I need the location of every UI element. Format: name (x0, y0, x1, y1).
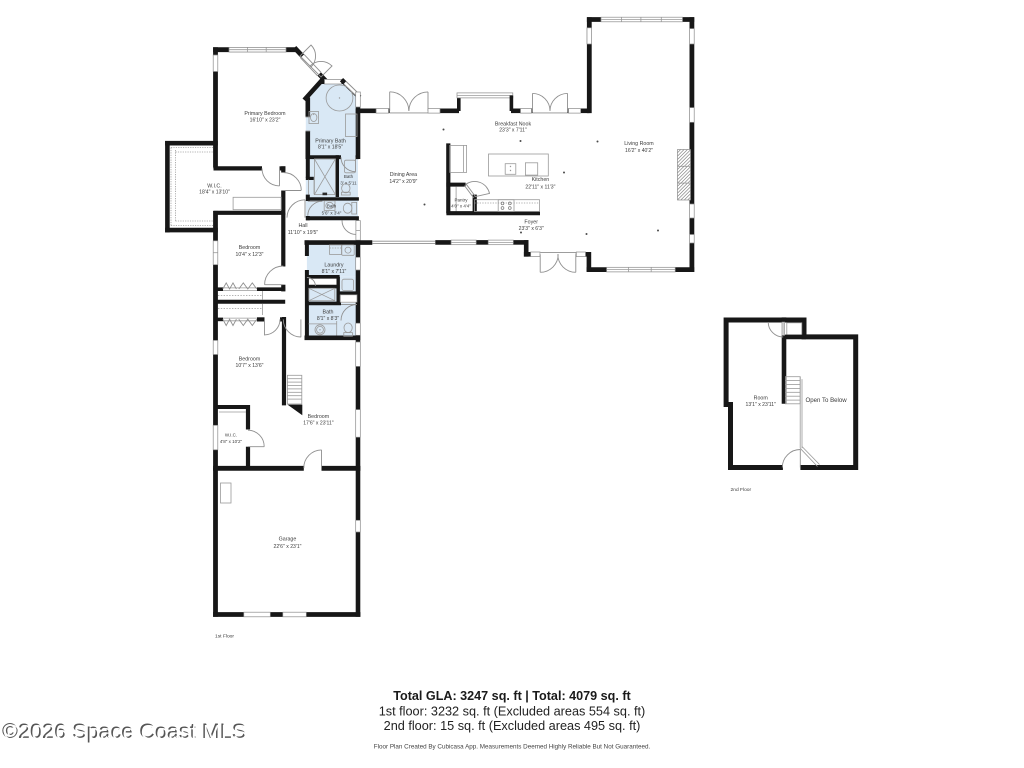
svg-text:Hall: Hall (298, 223, 307, 229)
svg-text:14'2" x 20'9": 14'2" x 20'9" (389, 179, 417, 185)
svg-text:8'1" x 18'5": 8'1" x 18'5" (318, 145, 343, 151)
svg-text:Bedroom: Bedroom (239, 245, 261, 251)
svg-text:Breakfast Nook: Breakfast Nook (495, 121, 532, 127)
svg-text:Living Room: Living Room (624, 141, 654, 147)
svg-text:Foyer: Foyer (524, 219, 538, 225)
svg-text:W.I.C.: W.I.C. (225, 433, 237, 438)
svg-text:16'2" x 40'2": 16'2" x 40'2" (625, 148, 653, 154)
svg-text:10'7" x 13'6": 10'7" x 13'6" (236, 363, 264, 369)
svg-text:Primary Bedroom: Primary Bedroom (244, 111, 286, 117)
svg-text:Room: Room (754, 395, 769, 401)
svg-text:11'10" x 19'5": 11'10" x 19'5" (288, 230, 319, 236)
svg-text:22'11" x 11'3": 22'11" x 11'3" (525, 184, 555, 190)
svg-text:W.I.C.: W.I.C. (207, 183, 221, 189)
svg-text:2nd Floor: 2nd Floor (731, 487, 752, 493)
svg-text:Bedroom: Bedroom (239, 356, 261, 362)
svg-text:Kitchen: Kitchen (532, 177, 550, 183)
svg-text:Open To Below: Open To Below (805, 397, 847, 404)
svg-text:23'3" x 7'11": 23'3" x 7'11" (499, 128, 527, 134)
svg-text:8'1" x 7'11": 8'1" x 7'11" (322, 269, 347, 275)
svg-text:3' x 5'11: 3' x 5'11 (340, 180, 357, 185)
svg-text:22'6" x 23'1": 22'6" x 23'1" (274, 544, 302, 550)
svg-text:23'3" x 6'3": 23'3" x 6'3" (519, 226, 544, 232)
svg-text:Dining Area: Dining Area (390, 172, 417, 178)
svg-text:Garage: Garage (279, 537, 297, 543)
svg-text:4'8" x 10'2": 4'8" x 10'2" (220, 439, 243, 444)
svg-text:Bath: Bath (344, 174, 354, 179)
svg-text:Bedroom: Bedroom (308, 414, 330, 420)
svg-text:Laundry: Laundry (324, 262, 343, 268)
svg-text:18'4" x 13'10": 18'4" x 13'10" (199, 190, 230, 196)
svg-text:5'6" x 3'4": 5'6" x 3'4" (322, 210, 342, 215)
svg-text:10'4" x 12'3": 10'4" x 12'3" (236, 252, 264, 258)
svg-text:©2026 Space Coast MLS: ©2026 Space Coast MLS (4, 719, 248, 744)
svg-text:13'1" x 23'11": 13'1" x 23'11" (746, 402, 777, 408)
svg-text:8'1" x 8'3": 8'1" x 8'3" (317, 316, 339, 322)
svg-text:17'6" x 23'11": 17'6" x 23'11" (303, 420, 334, 426)
svg-text:Pantry: Pantry (454, 197, 468, 202)
svg-text:Bath: Bath (323, 310, 334, 316)
svg-text:4'0" x 4'4": 4'0" x 4'4" (451, 204, 471, 209)
svg-text:Total GLA: 3247 sq. ft | Total: Total GLA: 3247 sq. ft | Total: 4079 sq.… (393, 689, 631, 703)
svg-text:Bath: Bath (327, 204, 337, 209)
svg-text:16'10" x 23'2": 16'10" x 23'2" (250, 117, 281, 123)
svg-text:1st Floor: 1st Floor (215, 633, 234, 639)
svg-text:Primary Bath: Primary Bath (315, 138, 346, 144)
svg-text:Floor Plan Created By Cubicasa: Floor Plan Created By Cubicasa App. Meas… (374, 744, 651, 751)
svg-text:2nd floor: 15 sq. ft (Excluded: 2nd floor: 15 sq. ft (Excluded areas 495… (384, 719, 641, 733)
svg-text:1st floor: 3232 sq. ft (Exclud: 1st floor: 3232 sq. ft (Excluded areas 5… (379, 704, 646, 718)
